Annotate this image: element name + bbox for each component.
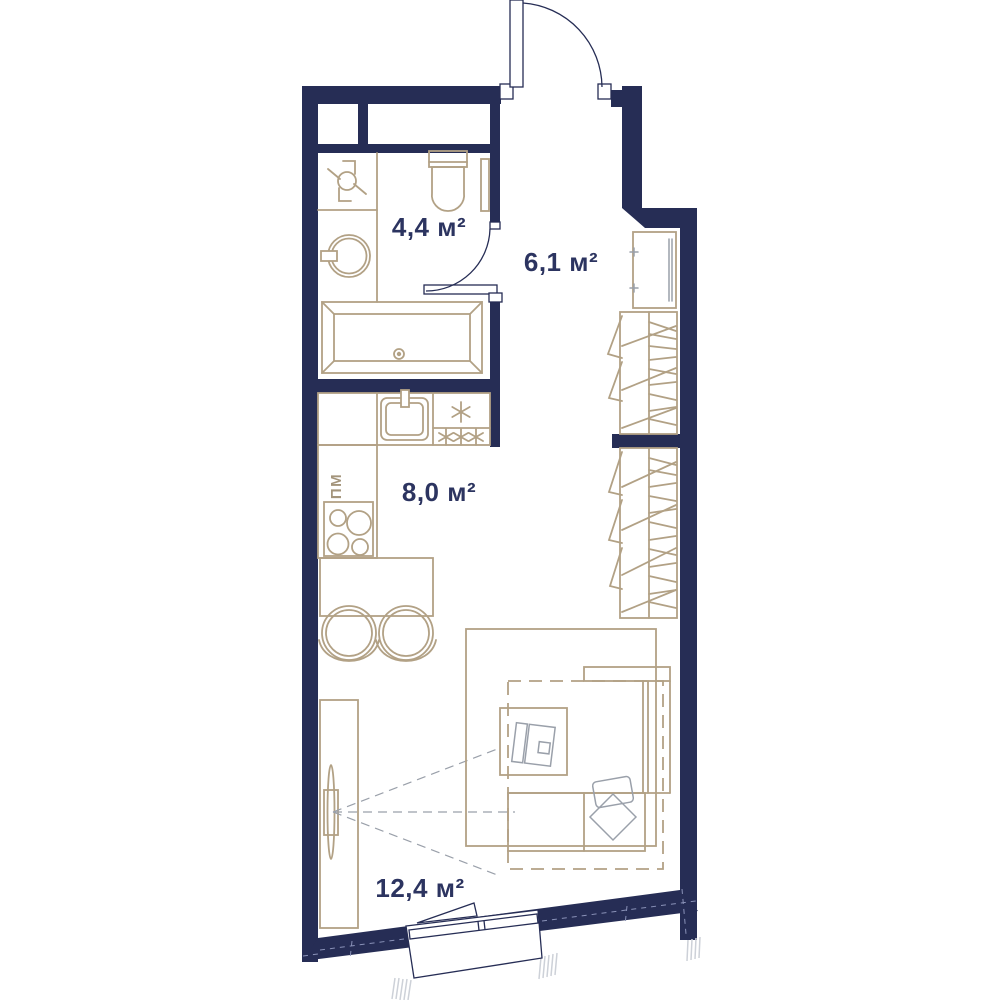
washing-machine-icon — [321, 235, 370, 277]
walls — [302, 86, 700, 1000]
hallway-cabinet — [630, 232, 676, 308]
dishwasher-label: ПМ — [328, 473, 345, 499]
dining-chairs — [319, 606, 436, 661]
fridge-star-icon — [452, 402, 469, 422]
wall-top — [302, 86, 501, 104]
floor-plan-canvas: 4,4 м² ПМ — [0, 0, 1000, 1000]
bathroom-area-label: 4,4 м² — [392, 212, 466, 242]
wall-bathroom-right-upper — [490, 104, 500, 223]
kitchen-sink-icon — [381, 390, 428, 440]
window — [406, 903, 542, 978]
wall-left — [302, 86, 318, 962]
bathroom-door-hinge — [489, 293, 502, 302]
wardrobe-hall — [608, 312, 677, 434]
floor-plan-svg: 4,4 м² ПМ — [0, 0, 1000, 1000]
living-room-area-label: 12,4 м² — [375, 873, 464, 903]
freezer-stars-icon — [439, 429, 483, 445]
rug — [466, 629, 656, 846]
ventilation-fan-icon — [328, 161, 366, 201]
laptop-icon — [512, 723, 555, 766]
desk-chair-icon — [590, 776, 636, 840]
sofa-bed — [508, 667, 670, 851]
living-room: 12,4 м² — [320, 629, 670, 928]
desk — [500, 708, 567, 775]
kitchen: ПМ 8,0 м² — [318, 390, 490, 661]
towel-radiator-icon — [481, 159, 489, 211]
stove-icon — [324, 502, 373, 556]
wall-shaft-bottom — [318, 144, 500, 153]
tv-viewing-lines — [333, 748, 515, 876]
entrance-door — [500, 0, 611, 99]
wall-kitchen-stub — [490, 393, 500, 447]
hallway: 6,1 м² — [524, 232, 677, 618]
toilet-icon — [429, 151, 467, 211]
bathtub-icon — [322, 302, 482, 373]
bathroom: 4,4 м² — [318, 151, 502, 373]
door-jamb-right — [598, 84, 611, 99]
bathroom-door-jamb-top — [490, 222, 500, 229]
vent-shaft-divider — [358, 104, 368, 144]
hallway-area-label: 6,1 м² — [524, 247, 598, 277]
bathroom-door-leaf — [424, 285, 497, 294]
kitchen-area-label: 8,0 м² — [402, 477, 476, 507]
wall-wardrobe-stub — [612, 434, 680, 448]
wardrobe-living — [609, 448, 677, 618]
entrance-door-swing-arc — [523, 3, 602, 87]
entrance-door-leaf — [510, 0, 523, 87]
